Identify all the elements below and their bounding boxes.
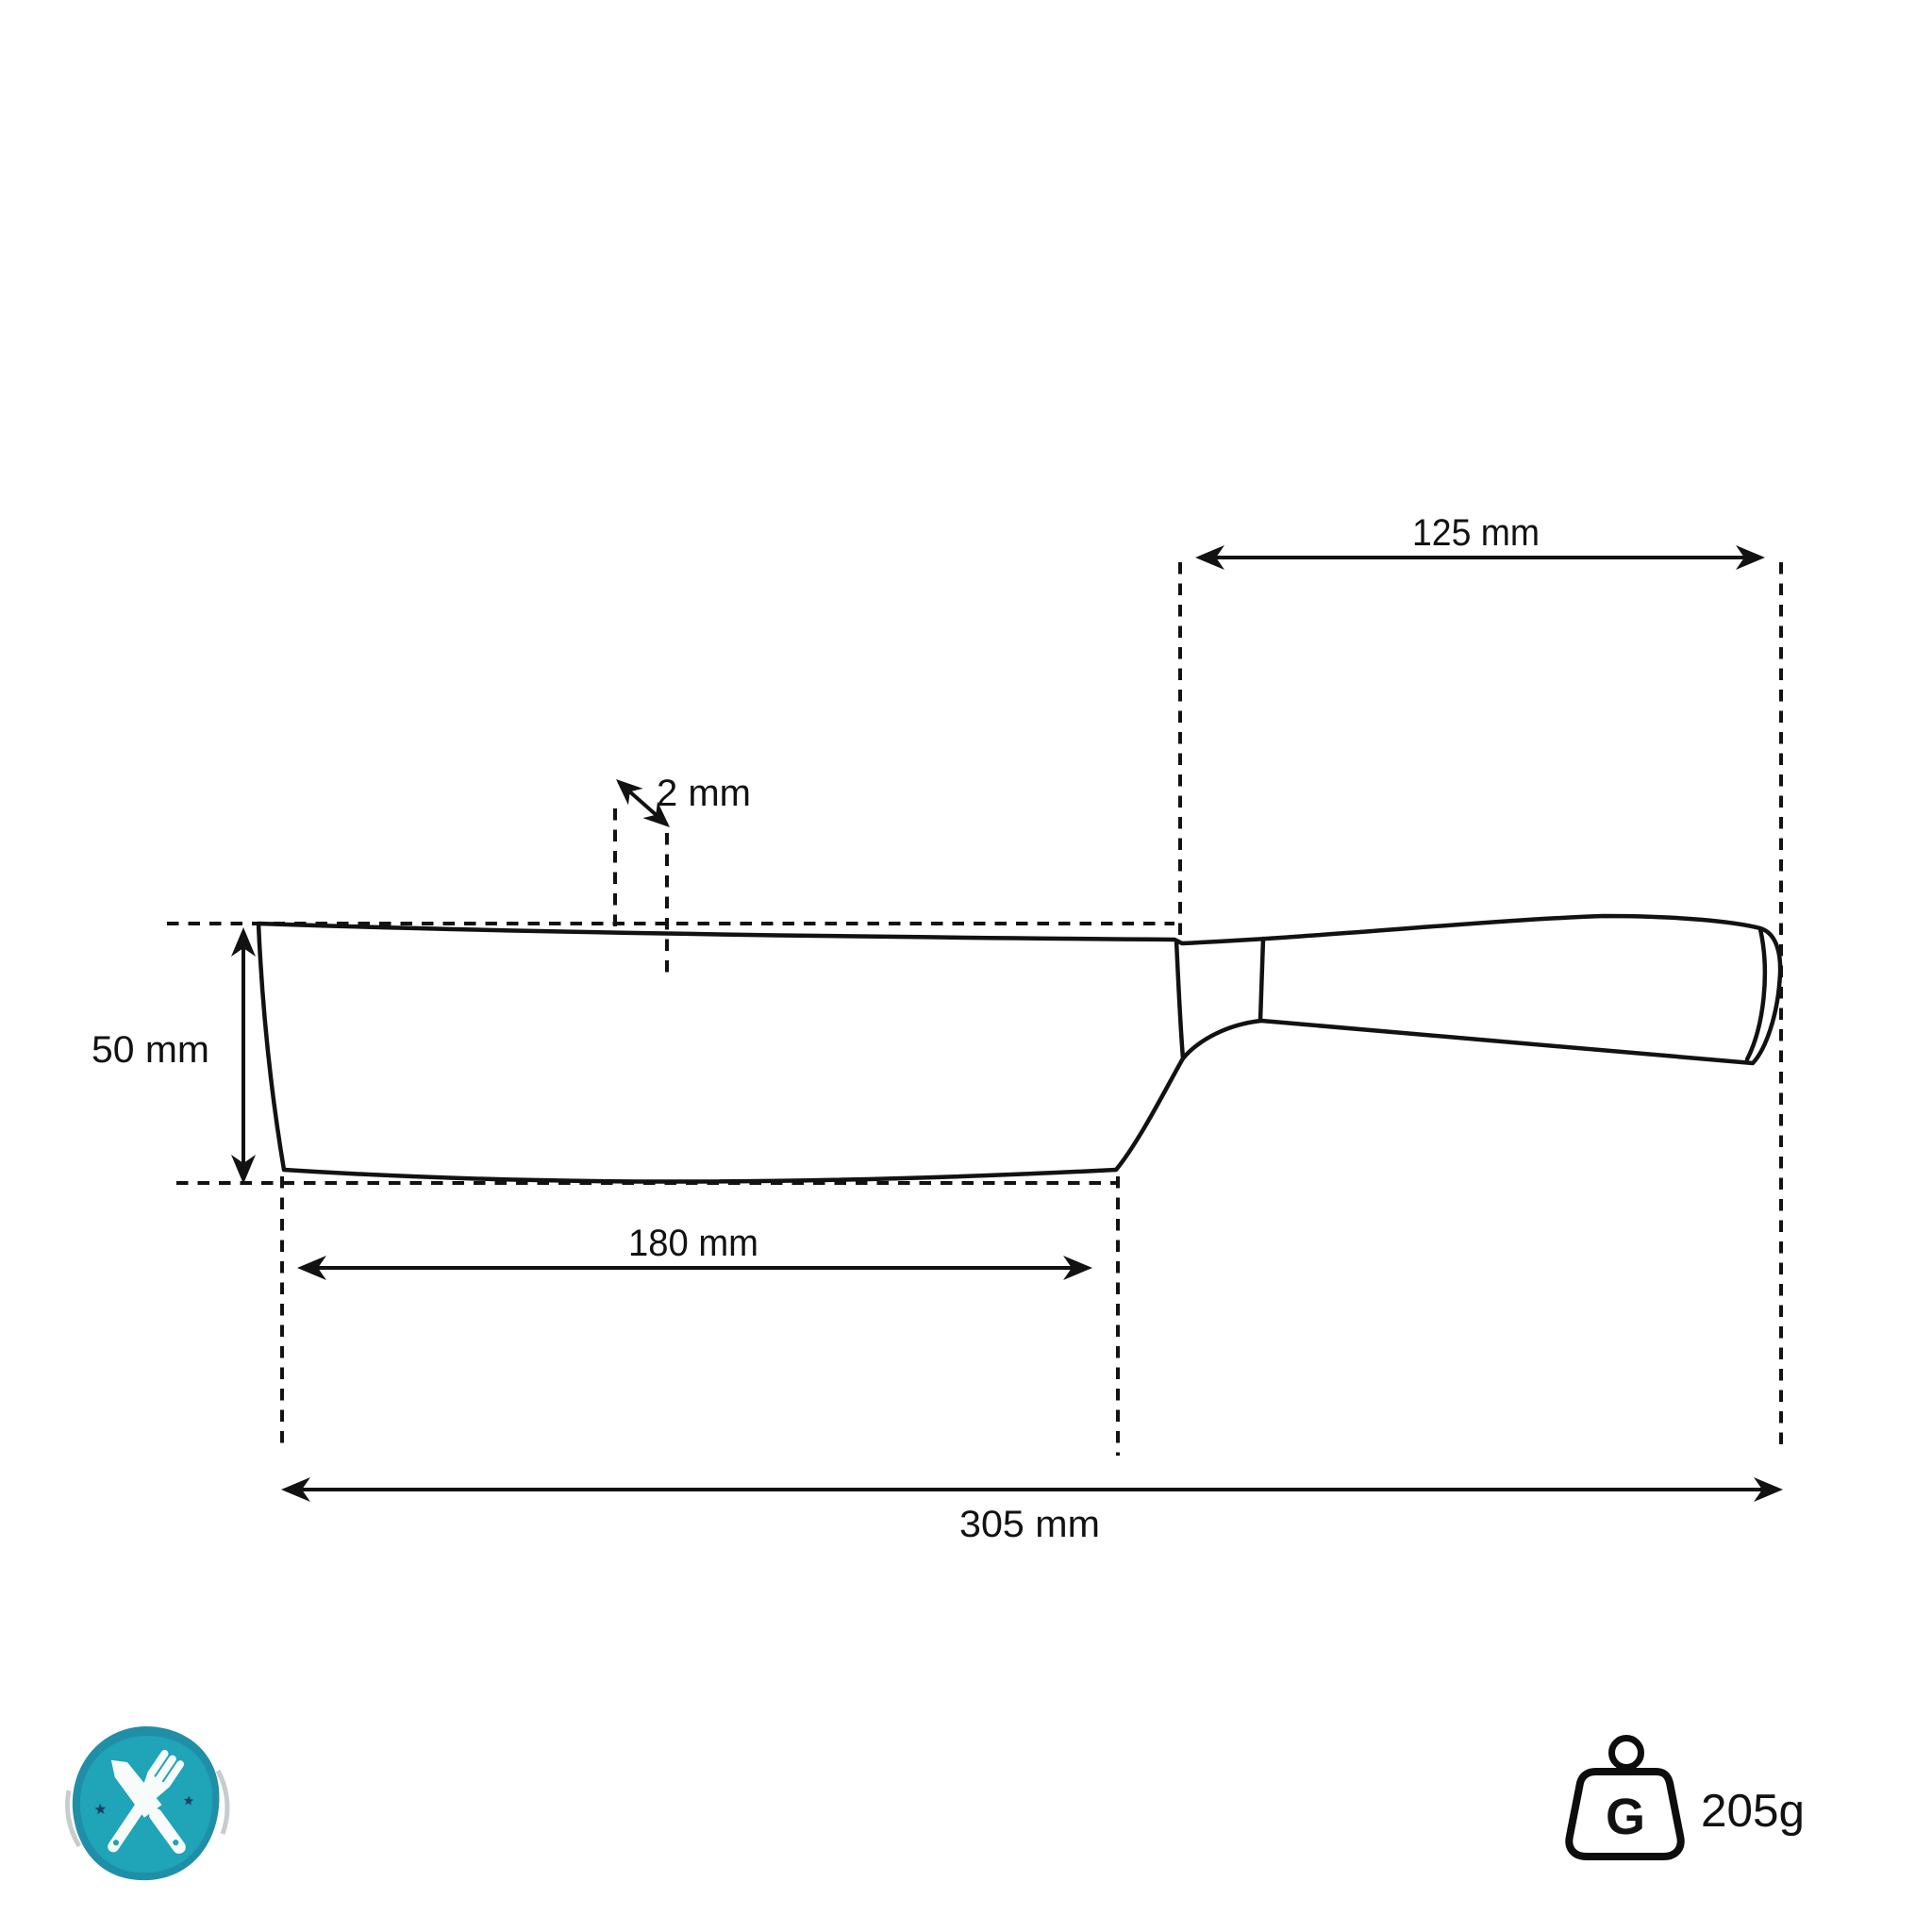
svg-text:50 mm: 50 mm xyxy=(92,1029,209,1071)
svg-text:205g: 205g xyxy=(1701,1786,1805,1837)
svg-text:125 mm: 125 mm xyxy=(1412,512,1540,554)
svg-text:G: G xyxy=(1606,1789,1645,1845)
svg-text:2 mm: 2 mm xyxy=(657,773,751,814)
svg-text:180 mm: 180 mm xyxy=(628,1223,758,1264)
svg-text:305 mm: 305 mm xyxy=(959,1504,1100,1545)
